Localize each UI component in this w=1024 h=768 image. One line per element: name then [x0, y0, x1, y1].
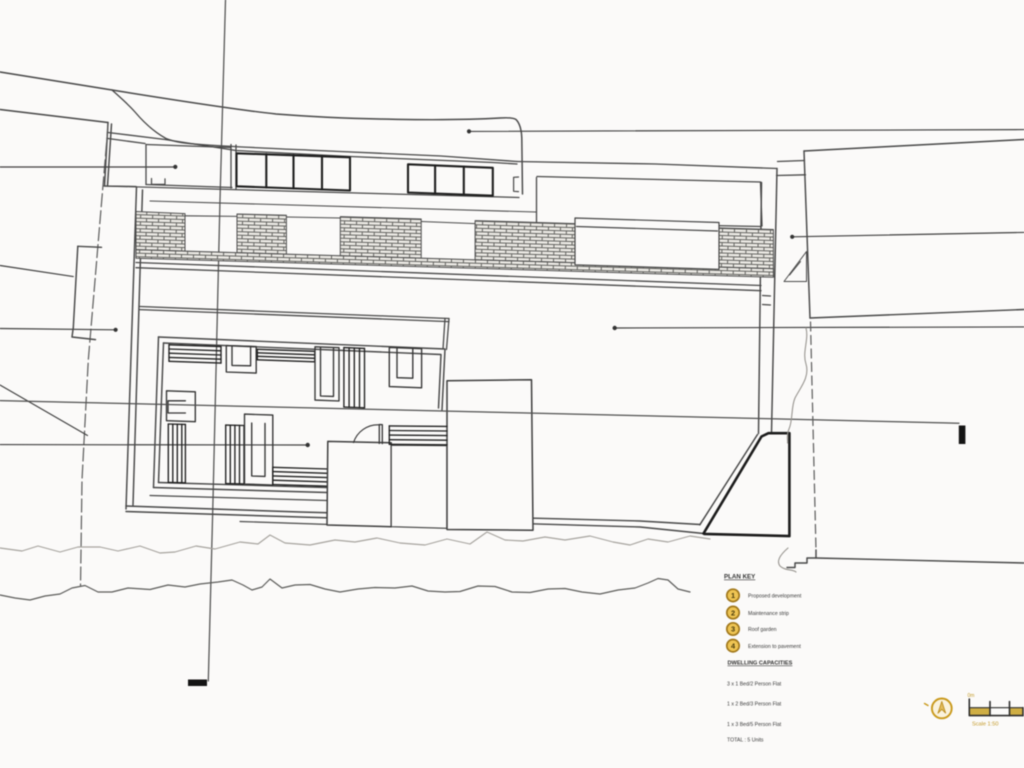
svg-text:PLAN KEY: PLAN KEY — [724, 574, 756, 581]
svg-text:2: 2 — [731, 608, 735, 617]
svg-text:3: 3 — [731, 625, 735, 634]
svg-text:Scale 1:50: Scale 1:50 — [972, 722, 998, 728]
svg-text:3 x 1 Bed/2 Person Flat: 3 x 1 Bed/2 Person Flat — [727, 682, 782, 688]
svg-text:0m: 0m — [968, 693, 975, 699]
svg-text:1: 1 — [731, 591, 735, 600]
svg-text:1 x 3 Bed/5 Person Flat: 1 x 3 Bed/5 Person Flat — [727, 722, 782, 728]
svg-text:DWELLING CAPACITIES: DWELLING CAPACITIES — [728, 661, 793, 667]
svg-text:Roof garden: Roof garden — [748, 627, 777, 633]
svg-text:1 x 2 Bed/3 Person Flat: 1 x 2 Bed/3 Person Flat — [727, 702, 782, 708]
svg-text:Extension to pavement: Extension to pavement — [748, 644, 801, 650]
svg-text:Proposed development: Proposed development — [748, 594, 802, 600]
svg-text:Maintenance strip: Maintenance strip — [748, 611, 789, 617]
svg-text:TOTAL : 5 Units: TOTAL : 5 Units — [727, 738, 764, 744]
